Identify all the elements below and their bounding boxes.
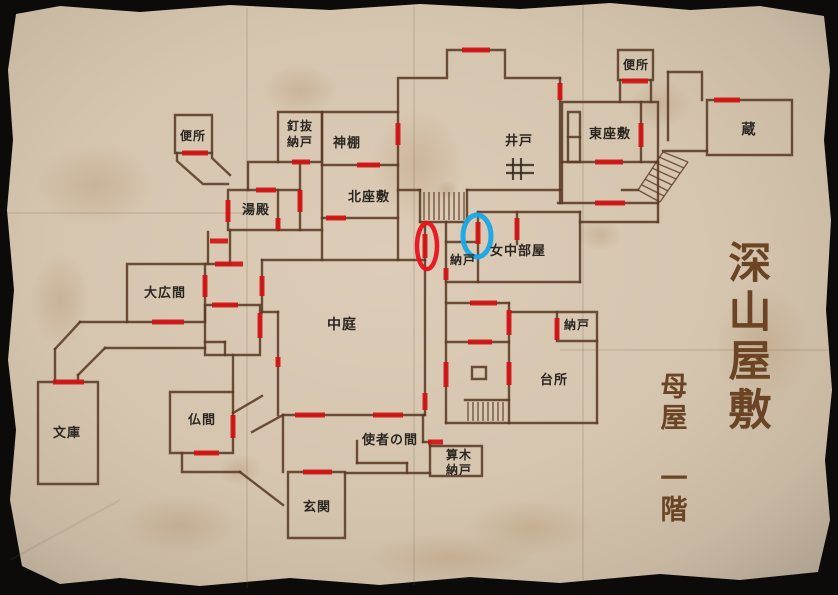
room-label-yudono: 湯殿 <box>242 202 270 218</box>
room-label-kuginuki-line2: 納戸 <box>287 134 313 149</box>
room-label-kamidana: 神棚 <box>333 135 361 151</box>
room-label-toilet-nw: 便所 <box>180 128 206 143</box>
room-label-sangi-line2: 納戸 <box>446 462 472 477</box>
room-label-nando-kitchen: 納戸 <box>564 317 590 332</box>
room-label-ido: 井戸 <box>505 133 533 149</box>
map-subtitle-building: 母屋 <box>656 372 688 434</box>
room-label-ohiroma: 大広間 <box>144 285 186 301</box>
paper-sheet <box>7 3 832 586</box>
room-label-genkan: 玄関 <box>303 499 331 515</box>
map-subtitle-floor: 一階 <box>656 464 688 526</box>
room-label-kuginuki-line1: 釘抜 <box>287 118 313 133</box>
room-label-nando-center: 納戸 <box>450 252 476 267</box>
room-label-higashi-zashiki: 東座敷 <box>589 126 631 142</box>
room-label-daidokoro: 台所 <box>540 372 568 388</box>
floor-plan-map: 便所 釘抜 納戸 神棚 湯殿 北座敷 井戸 便所 東座敷 蔵 納戸 女中部屋 大… <box>0 0 838 595</box>
room-label-sangi-line1: 算木 <box>446 447 472 462</box>
room-label-shisha-no-ma: 使者の間 <box>361 432 418 448</box>
room-label-nakaniwa: 中庭 <box>327 316 357 333</box>
room-label-bunko: 文庫 <box>53 425 81 441</box>
room-label-toilet-ne: 便所 <box>623 57 649 72</box>
map-title: 深山屋敷 <box>721 240 772 436</box>
room-label-jochu-beya: 女中部屋 <box>490 243 546 259</box>
room-label-kura: 蔵 <box>742 121 757 138</box>
room-label-kita-zashiki: 北座敷 <box>348 189 390 205</box>
room-label-butsuma: 仏間 <box>188 413 216 428</box>
